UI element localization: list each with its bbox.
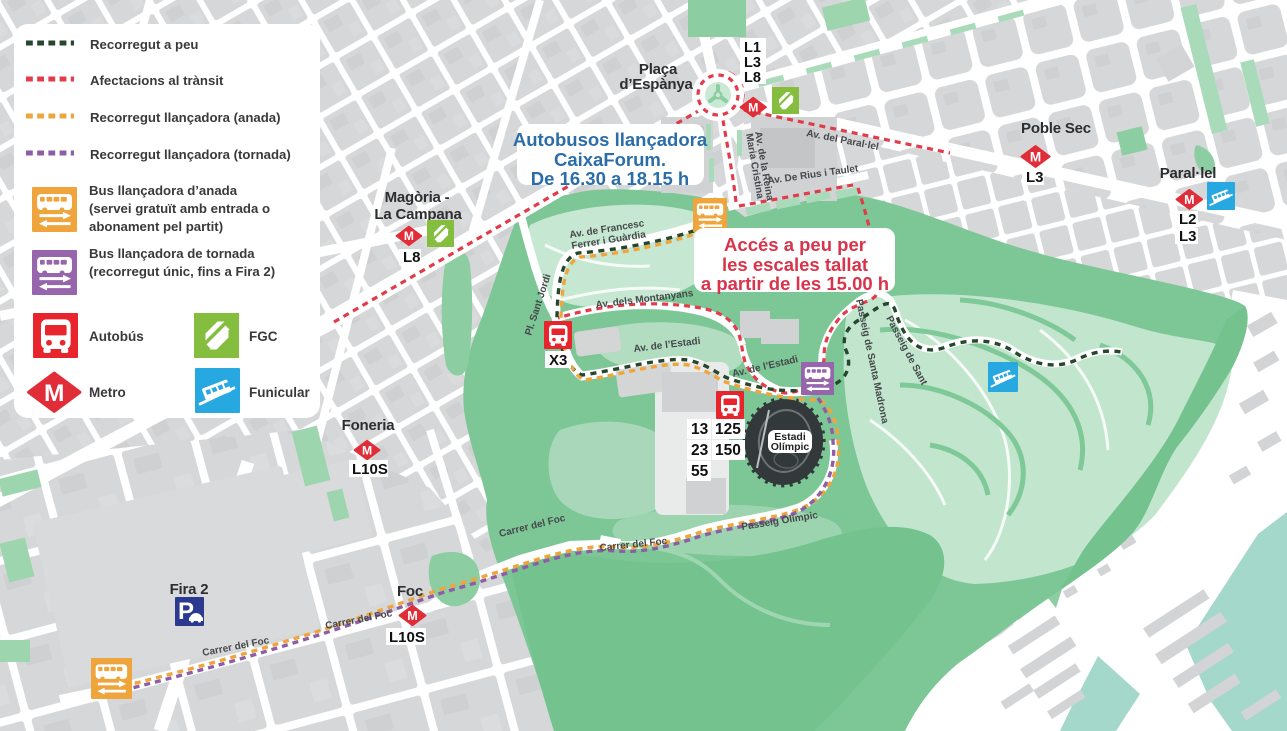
svg-text:55: 55 [691, 463, 709, 480]
svg-text:Afectacions al trànsit: Afectacions al trànsit [90, 73, 224, 88]
svg-text:Bus llançadora d’anada: Bus llançadora d’anada [89, 183, 238, 198]
svg-text:Bus llançadora de tornada: Bus llançadora de tornada [89, 246, 255, 261]
svg-text:Magòria -: Magòria - [385, 189, 450, 206]
svg-text:150: 150 [715, 442, 741, 459]
svg-text:L8: L8 [744, 70, 761, 86]
svg-text:a partir de les 15.00 h: a partir de les 15.00 h [701, 273, 889, 294]
svg-text:d’Espànya: d’Espànya [619, 76, 693, 93]
svg-text:CaixaForum.: CaixaForum. [554, 149, 666, 170]
svg-text:les escales tallat: les escales tallat [722, 254, 868, 275]
svg-text:Foneria: Foneria [342, 417, 396, 434]
svg-text:L2: L2 [1179, 211, 1197, 228]
svg-text:Metro: Metro [89, 385, 126, 400]
svg-text:Fira 2: Fira 2 [170, 581, 209, 598]
svg-text:L10S: L10S [352, 461, 388, 478]
svg-text:FGC: FGC [249, 329, 278, 344]
svg-text:Recorregut llançadora (anada): Recorregut llançadora (anada) [90, 110, 281, 125]
svg-text:L3: L3 [744, 55, 761, 71]
svg-text:Autobusos llançadora: Autobusos llançadora [513, 129, 708, 150]
svg-text:L1: L1 [744, 40, 761, 56]
svg-text:De 16.30 a 18.15 h: De 16.30 a 18.15 h [531, 168, 689, 189]
svg-text:L10S: L10S [389, 629, 425, 646]
svg-text:L3: L3 [1179, 228, 1197, 245]
svg-text:Recorregut a peu: Recorregut a peu [90, 37, 198, 52]
svg-text:Recorregut llançadora (tornada: Recorregut llançadora (tornada) [90, 147, 291, 162]
svg-text:X3: X3 [549, 352, 567, 369]
svg-text:23: 23 [691, 442, 709, 459]
svg-text:Autobús: Autobús [89, 329, 144, 344]
svg-text:Poble Sec: Poble Sec [1021, 120, 1091, 137]
svg-text:Accés a peu per: Accés a peu per [724, 234, 866, 255]
svg-text:Olímpic: Olímpic [771, 441, 810, 453]
svg-text:Foc: Foc [397, 583, 423, 600]
svg-text:Funicular: Funicular [249, 385, 311, 400]
svg-text:(recorregut únic, fins a Fira: (recorregut únic, fins a Fira 2) [89, 264, 275, 279]
svg-text:(servei gratuït amb entrada o: (servei gratuït amb entrada o [89, 201, 270, 216]
svg-text:125: 125 [715, 421, 741, 438]
svg-text:L8: L8 [403, 249, 421, 266]
svg-text:L3: L3 [1026, 169, 1044, 186]
svg-text:13: 13 [691, 421, 709, 438]
svg-text:abonament pel partit): abonament pel partit) [89, 219, 223, 234]
svg-text:Paral·lel: Paral·lel [1160, 165, 1217, 182]
